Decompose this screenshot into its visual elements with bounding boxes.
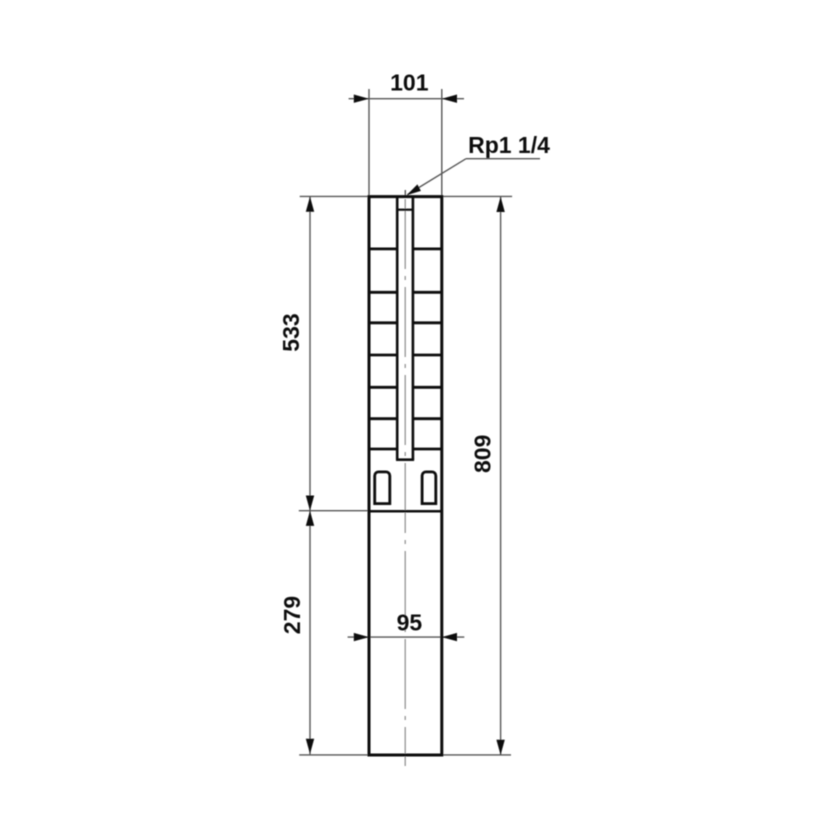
svg-text:95: 95 bbox=[397, 610, 423, 636]
svg-text:279: 279 bbox=[279, 596, 305, 634]
svg-text:533: 533 bbox=[278, 313, 304, 351]
svg-text:Rp1 1/4: Rp1 1/4 bbox=[468, 132, 550, 158]
svg-text:809: 809 bbox=[469, 435, 495, 473]
svg-text:101: 101 bbox=[390, 70, 429, 96]
